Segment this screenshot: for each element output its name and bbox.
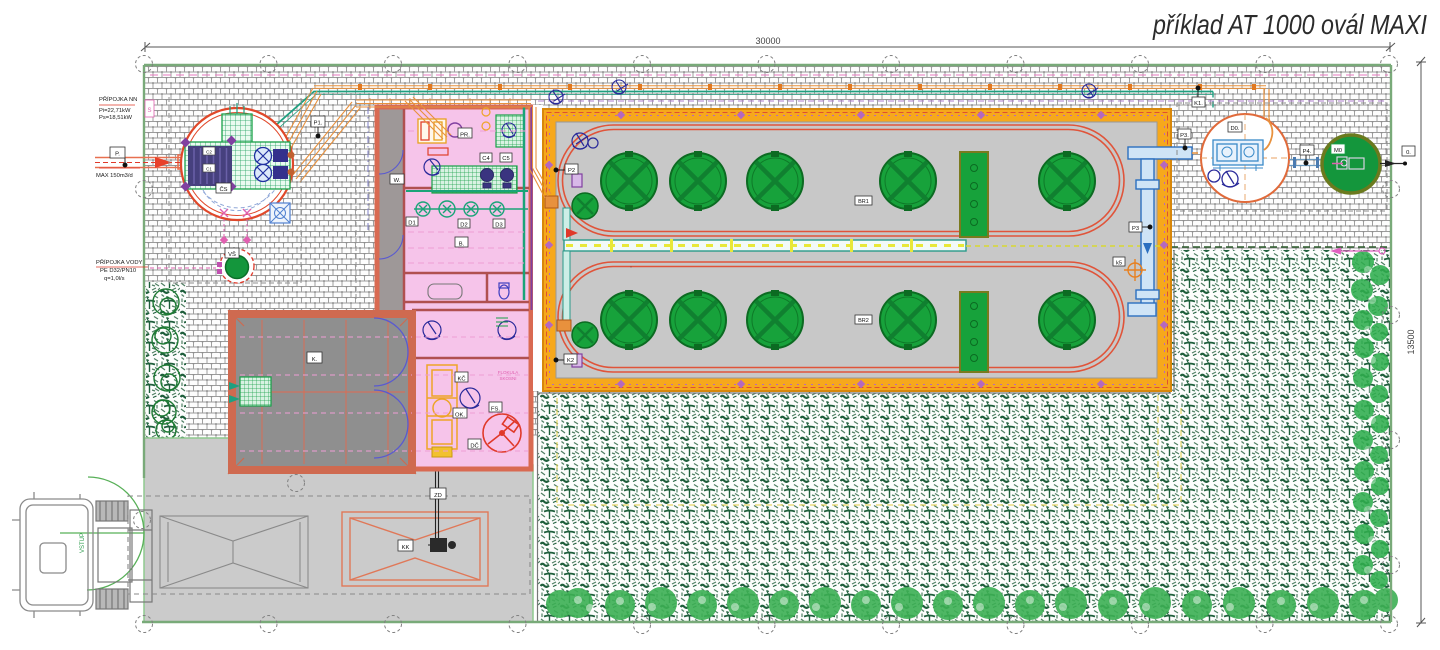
svg-text:Pi=22,71kW: Pi=22,71kW [99, 108, 131, 114]
svg-text:FLOKULA: FLOKULA [498, 370, 519, 375]
svg-text:C1: C1 [206, 166, 212, 171]
svg-text:ČS: ČS [219, 186, 227, 193]
svg-text:BR1: BR1 [858, 199, 869, 205]
svg-text:W.: W. [394, 178, 401, 184]
svg-text:0.: 0. [1406, 150, 1411, 156]
svg-text:VŠ: VŠ [228, 251, 236, 258]
svg-text:VSTUP: VSTUP [80, 533, 86, 553]
svg-text:ZD: ZD [434, 493, 442, 499]
svg-text:D0.: D0. [1230, 126, 1239, 132]
svg-text:P3.: P3. [1180, 133, 1189, 139]
svg-text:DČ: DČ [470, 443, 478, 450]
svg-text:Ps=18,51kW: Ps=18,51kW [99, 115, 133, 121]
svg-text:P4.: P4. [1303, 149, 1312, 155]
svg-text:D1: D1 [408, 221, 415, 227]
svg-text:KK: KK [402, 545, 410, 551]
svg-text:BR2: BR2 [858, 318, 869, 324]
svg-text:K.: K. [312, 357, 318, 363]
svg-text:13500: 13500 [1406, 329, 1416, 354]
svg-text:OK.: OK. [455, 413, 465, 419]
svg-text:PE D32/PN10: PE D32/PN10 [100, 268, 136, 274]
svg-text:P1.: P1. [314, 121, 323, 127]
svg-text:K1.: K1. [1194, 101, 1203, 107]
svg-text:C5: C5 [502, 156, 509, 162]
svg-text:K2: K2 [567, 358, 574, 364]
svg-text:30000: 30000 [755, 36, 780, 46]
svg-text:D2: D2 [460, 223, 467, 229]
svg-text:PŘÍPOJKA VODY: PŘÍPOJKA VODY [96, 258, 143, 266]
svg-text:PR.: PR. [460, 133, 470, 139]
svg-text:P.: P. [115, 152, 120, 158]
svg-text:PŘÍPOJKA NN: PŘÍPOJKA NN [99, 95, 137, 103]
svg-text:C2: C2 [206, 149, 212, 154]
svg-text:C4: C4 [482, 156, 490, 162]
svg-text:P2: P2 [568, 168, 575, 174]
svg-text:M0: M0 [1334, 148, 1342, 154]
svg-text:P3: P3 [1132, 226, 1139, 232]
svg-text:S: S [147, 108, 151, 114]
svg-text:D3: D3 [495, 223, 502, 229]
svg-text:FS.: FS. [491, 407, 500, 413]
svg-text:KČ: KČ [457, 376, 465, 383]
svg-text:SKOSNI: SKOSNI [499, 376, 516, 381]
svg-text:B.: B. [459, 242, 465, 248]
svg-text:q=1,0l/s: q=1,0l/s [104, 276, 125, 282]
svg-text:příklad AT 1000 ovál MAXI: příklad AT 1000 ovál MAXI [1152, 9, 1427, 40]
svg-text:k5: k5 [1116, 261, 1122, 267]
svg-text:MAX 150m3/d: MAX 150m3/d [96, 173, 133, 179]
